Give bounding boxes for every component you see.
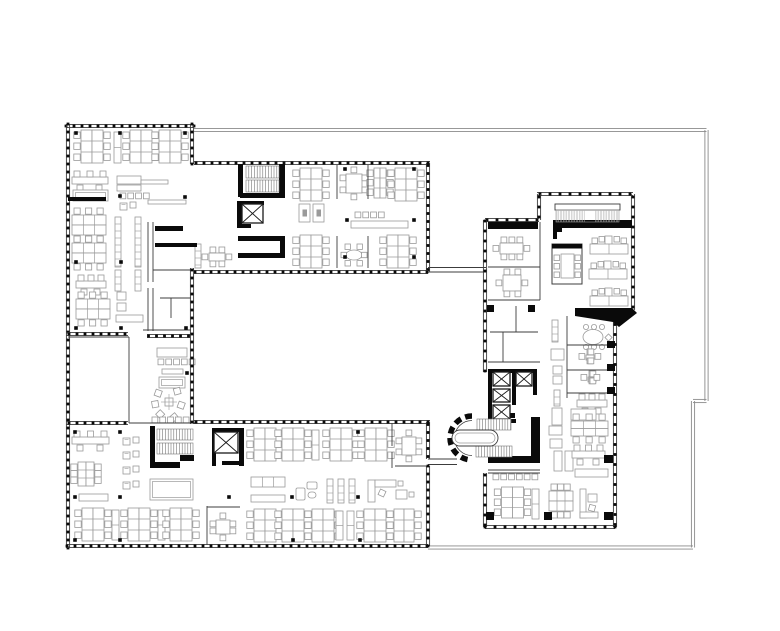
desk-group — [590, 288, 628, 306]
desk-group — [590, 236, 628, 254]
side-table — [553, 366, 562, 374]
stair-flight — [477, 419, 511, 430]
desk-cluster — [358, 428, 394, 461]
desk-cluster — [76, 292, 110, 326]
side-table — [117, 292, 126, 300]
meeting-booth — [552, 244, 582, 284]
shelf — [115, 217, 121, 267]
counter-table — [117, 176, 141, 184]
counter-table — [157, 348, 187, 357]
locker — [112, 510, 119, 540]
side-table — [552, 408, 562, 425]
desk-cluster — [275, 428, 311, 461]
desk-cluster — [121, 508, 157, 541]
stair-flight — [157, 429, 193, 440]
desk-cluster — [72, 236, 106, 270]
locker — [312, 430, 319, 460]
side-table — [551, 349, 564, 360]
sofa — [150, 479, 193, 500]
desk-cluster — [549, 484, 573, 518]
shelf — [338, 479, 344, 503]
shelf — [135, 217, 141, 267]
counter-table — [162, 369, 183, 374]
chair-row — [152, 417, 189, 423]
side-table — [117, 303, 126, 311]
desk-cluster — [163, 508, 199, 541]
locker — [347, 511, 354, 540]
floor-plan-canvas — [0, 0, 780, 631]
counter-table — [575, 469, 608, 477]
desk-cluster — [152, 130, 188, 163]
elevator-shaft — [214, 432, 238, 453]
shelf — [349, 479, 355, 503]
shelf — [195, 244, 201, 268]
desk-cluster — [380, 235, 416, 268]
stair-flight — [246, 166, 279, 178]
side-table — [553, 376, 562, 384]
desk-cluster — [293, 235, 329, 268]
counter-table — [116, 315, 143, 322]
counter-table — [148, 200, 186, 204]
desk-cluster — [388, 168, 424, 201]
locker — [336, 511, 343, 540]
side-table — [550, 439, 562, 448]
locker — [114, 132, 121, 163]
counter-table — [141, 180, 168, 184]
elevator-shaft — [242, 204, 263, 223]
counter-table — [79, 494, 108, 501]
desk-cluster — [74, 130, 110, 163]
desk-cluster — [387, 509, 421, 542]
desk-group — [589, 261, 627, 279]
shelf — [327, 479, 333, 503]
counter-table — [251, 495, 285, 502]
desk-cluster — [293, 168, 329, 201]
desk-cluster — [323, 428, 359, 461]
desk-cluster — [494, 487, 530, 518]
desk-cluster — [71, 462, 101, 486]
project-table — [251, 477, 285, 487]
elevator-shaft — [493, 372, 510, 386]
locker — [532, 489, 539, 519]
shelf — [552, 320, 558, 342]
counter-table — [117, 185, 141, 191]
shelf — [554, 390, 560, 406]
stair-flight — [157, 443, 193, 454]
chair-row — [158, 359, 195, 365]
stair-flight — [246, 180, 279, 192]
stair-flight — [476, 446, 512, 457]
shelf — [135, 270, 141, 291]
shelf — [115, 270, 121, 291]
desk-cluster — [75, 508, 111, 541]
desk-cluster — [571, 414, 608, 443]
phone-booth — [299, 204, 310, 222]
phone-booth — [313, 204, 324, 222]
elevator-shaft — [493, 389, 510, 402]
floor-plan-page — [0, 0, 780, 631]
elevator-shaft — [516, 372, 532, 386]
side-table — [549, 426, 562, 435]
counter-table — [351, 221, 408, 228]
sofa — [159, 377, 185, 388]
elevator-shaft — [493, 405, 510, 419]
